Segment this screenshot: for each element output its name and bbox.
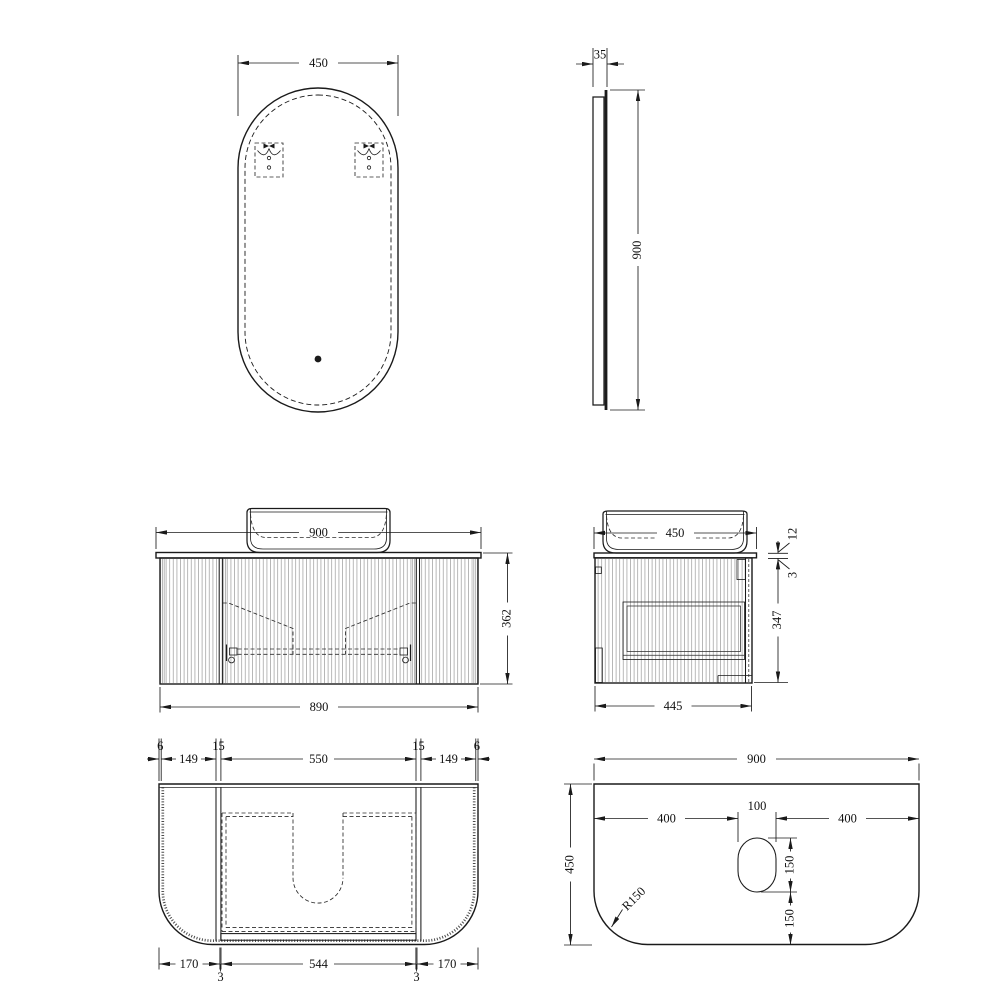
dim-side-wall-left: 6 [157, 739, 163, 753]
dim-corner-radius: R150 [619, 884, 648, 913]
cabinet-front [160, 558, 478, 684]
plumbing-u-cutout [293, 813, 343, 903]
dim-bottom-chain: 170 544 170 3 3 [159, 948, 478, 985]
dim-top-chain: 6 149 15 550 15 149 6 [147, 739, 490, 782]
dim-cabinet-height: 347 [770, 611, 784, 630]
view-counter-plan: 900 400 100 400 450 150 150 [562, 752, 919, 945]
dim-gap: 3 [785, 572, 799, 578]
dim-center-opening: 550 [309, 752, 328, 766]
view-mirror-side: 35 900 [576, 48, 645, 411]
dim-side-inner-right: 149 [439, 752, 458, 766]
basin-waste-cutout [738, 838, 776, 892]
dim-hole-left-offset: 400 [657, 811, 676, 825]
view-mirror-front: 450 [238, 55, 398, 412]
radius-callout: R150 [612, 884, 649, 927]
countertop-side [594, 553, 757, 558]
view-cabinet-plan: 6 149 15 550 15 149 6 [147, 739, 490, 985]
dim-front-right: 170 [438, 957, 457, 971]
technical-drawing-page: 450 35 900 [0, 0, 1000, 1000]
view-vanity-front: 900 [156, 509, 514, 714]
dim-side-wall-right: 6 [474, 739, 480, 753]
mirror-glass-edge [605, 90, 608, 410]
dim-counter-width: 900 [309, 525, 328, 539]
front-rail [221, 934, 416, 941]
dim-hole-position-chain: 400 100 400 [594, 799, 919, 842]
dim-counter-plan-width: 900 [747, 752, 766, 766]
dim-partition-right: 15 [412, 739, 425, 753]
mirror-hanger-bracket-left [255, 143, 283, 177]
dim-mirror-width: 450 [309, 56, 328, 70]
mirror-back-panel [593, 97, 604, 405]
dim-counter-thickness: 12 [785, 528, 799, 541]
dim-cabinet-width: 890 [310, 700, 329, 714]
dim-side-inner-left: 149 [179, 752, 198, 766]
touch-sensor-dot [315, 356, 322, 363]
dim-gap-right: 3 [413, 970, 419, 984]
dim-hole-to-front: 150 [782, 909, 796, 928]
dim-front-left: 170 [180, 957, 199, 971]
mirror-outline [238, 88, 398, 412]
dim-total-height: 362 [499, 609, 513, 628]
fluted-edge-band [163, 787, 474, 940]
dim-cabinet-depth: 445 [664, 699, 683, 713]
dim-hole-right-offset: 400 [838, 811, 857, 825]
dim-counter-plan-depth: 450 [562, 855, 576, 874]
dim-hole-width: 100 [748, 799, 767, 813]
cabinet-plan-body [159, 784, 478, 945]
mirror-hanger-bracket-right [355, 143, 383, 177]
dim-hole-vertical-chain: 150 150 [761, 838, 797, 945]
dim-drawer-width: 544 [309, 957, 329, 971]
dim-partition-left: 15 [212, 739, 225, 753]
view-vanity-side: 450 12 3 347 [594, 511, 799, 713]
technical-drawing-canvas: 450 35 900 [0, 0, 1000, 1000]
countertop-front [156, 553, 481, 559]
drawer-box-plan-dashed [222, 813, 416, 932]
dim-mirror-depth: 35 [594, 48, 607, 62]
dim-thickness-stack: 12 3 347 [754, 528, 799, 683]
dim-gap-left: 3 [217, 970, 223, 984]
cabinet-side [595, 558, 752, 683]
dim-counter-depth: 450 [666, 526, 685, 540]
dim-hole-height: 150 [782, 856, 796, 875]
dim-mirror-height: 900 [630, 241, 644, 260]
